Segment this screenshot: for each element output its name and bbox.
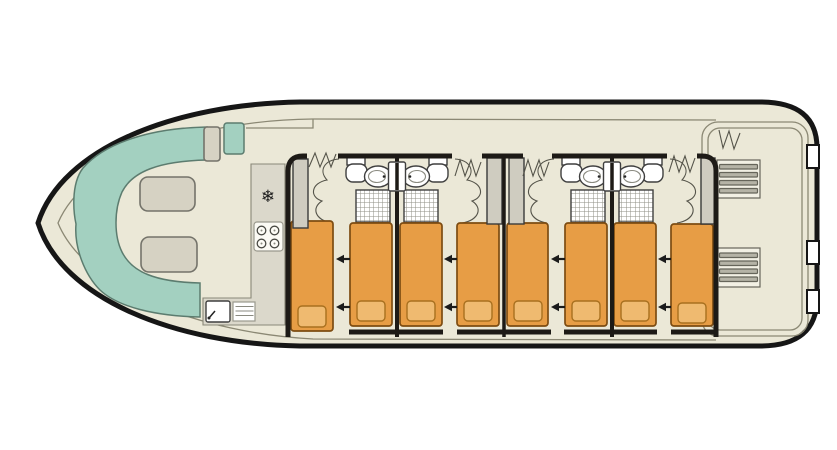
hob <box>254 222 283 251</box>
bed-6 <box>565 223 607 326</box>
bed-2 <box>350 223 392 326</box>
hull-gate-1 <box>807 145 819 168</box>
drainer <box>233 302 255 321</box>
boat-floor-plan: ❄ <box>0 0 837 450</box>
salon-table-2 <box>141 237 197 272</box>
stairs-2 <box>717 248 760 287</box>
wardrobe-1 <box>293 159 308 228</box>
hull-gate-2 <box>807 241 819 264</box>
salon-table-1 <box>140 177 195 211</box>
vanity-cabinet <box>604 162 621 191</box>
hull-gate-3 <box>807 290 819 313</box>
bed-5 <box>507 223 548 326</box>
pillow <box>572 301 600 321</box>
pillow <box>298 306 326 327</box>
fridge-icon: ❄ <box>261 187 275 207</box>
bed-4 <box>457 223 499 326</box>
bed-7 <box>614 223 656 326</box>
pillow <box>407 301 435 321</box>
stairs-1 <box>717 160 760 198</box>
vanity-cabinet <box>389 162 406 191</box>
pillow <box>357 301 385 321</box>
pillow <box>621 301 649 321</box>
wardrobe-2 <box>487 158 502 224</box>
wardrobe-3 <box>509 158 524 224</box>
bed-8 <box>671 224 713 326</box>
sink <box>206 301 230 322</box>
helm-seat-2 <box>224 123 244 154</box>
pillow <box>678 303 706 323</box>
bed-3 <box>400 223 442 326</box>
pillow <box>464 301 492 321</box>
bed-1 <box>291 221 333 331</box>
wardrobe-4 <box>701 158 715 224</box>
pillow <box>514 301 542 321</box>
helm-seat-1 <box>204 127 220 161</box>
